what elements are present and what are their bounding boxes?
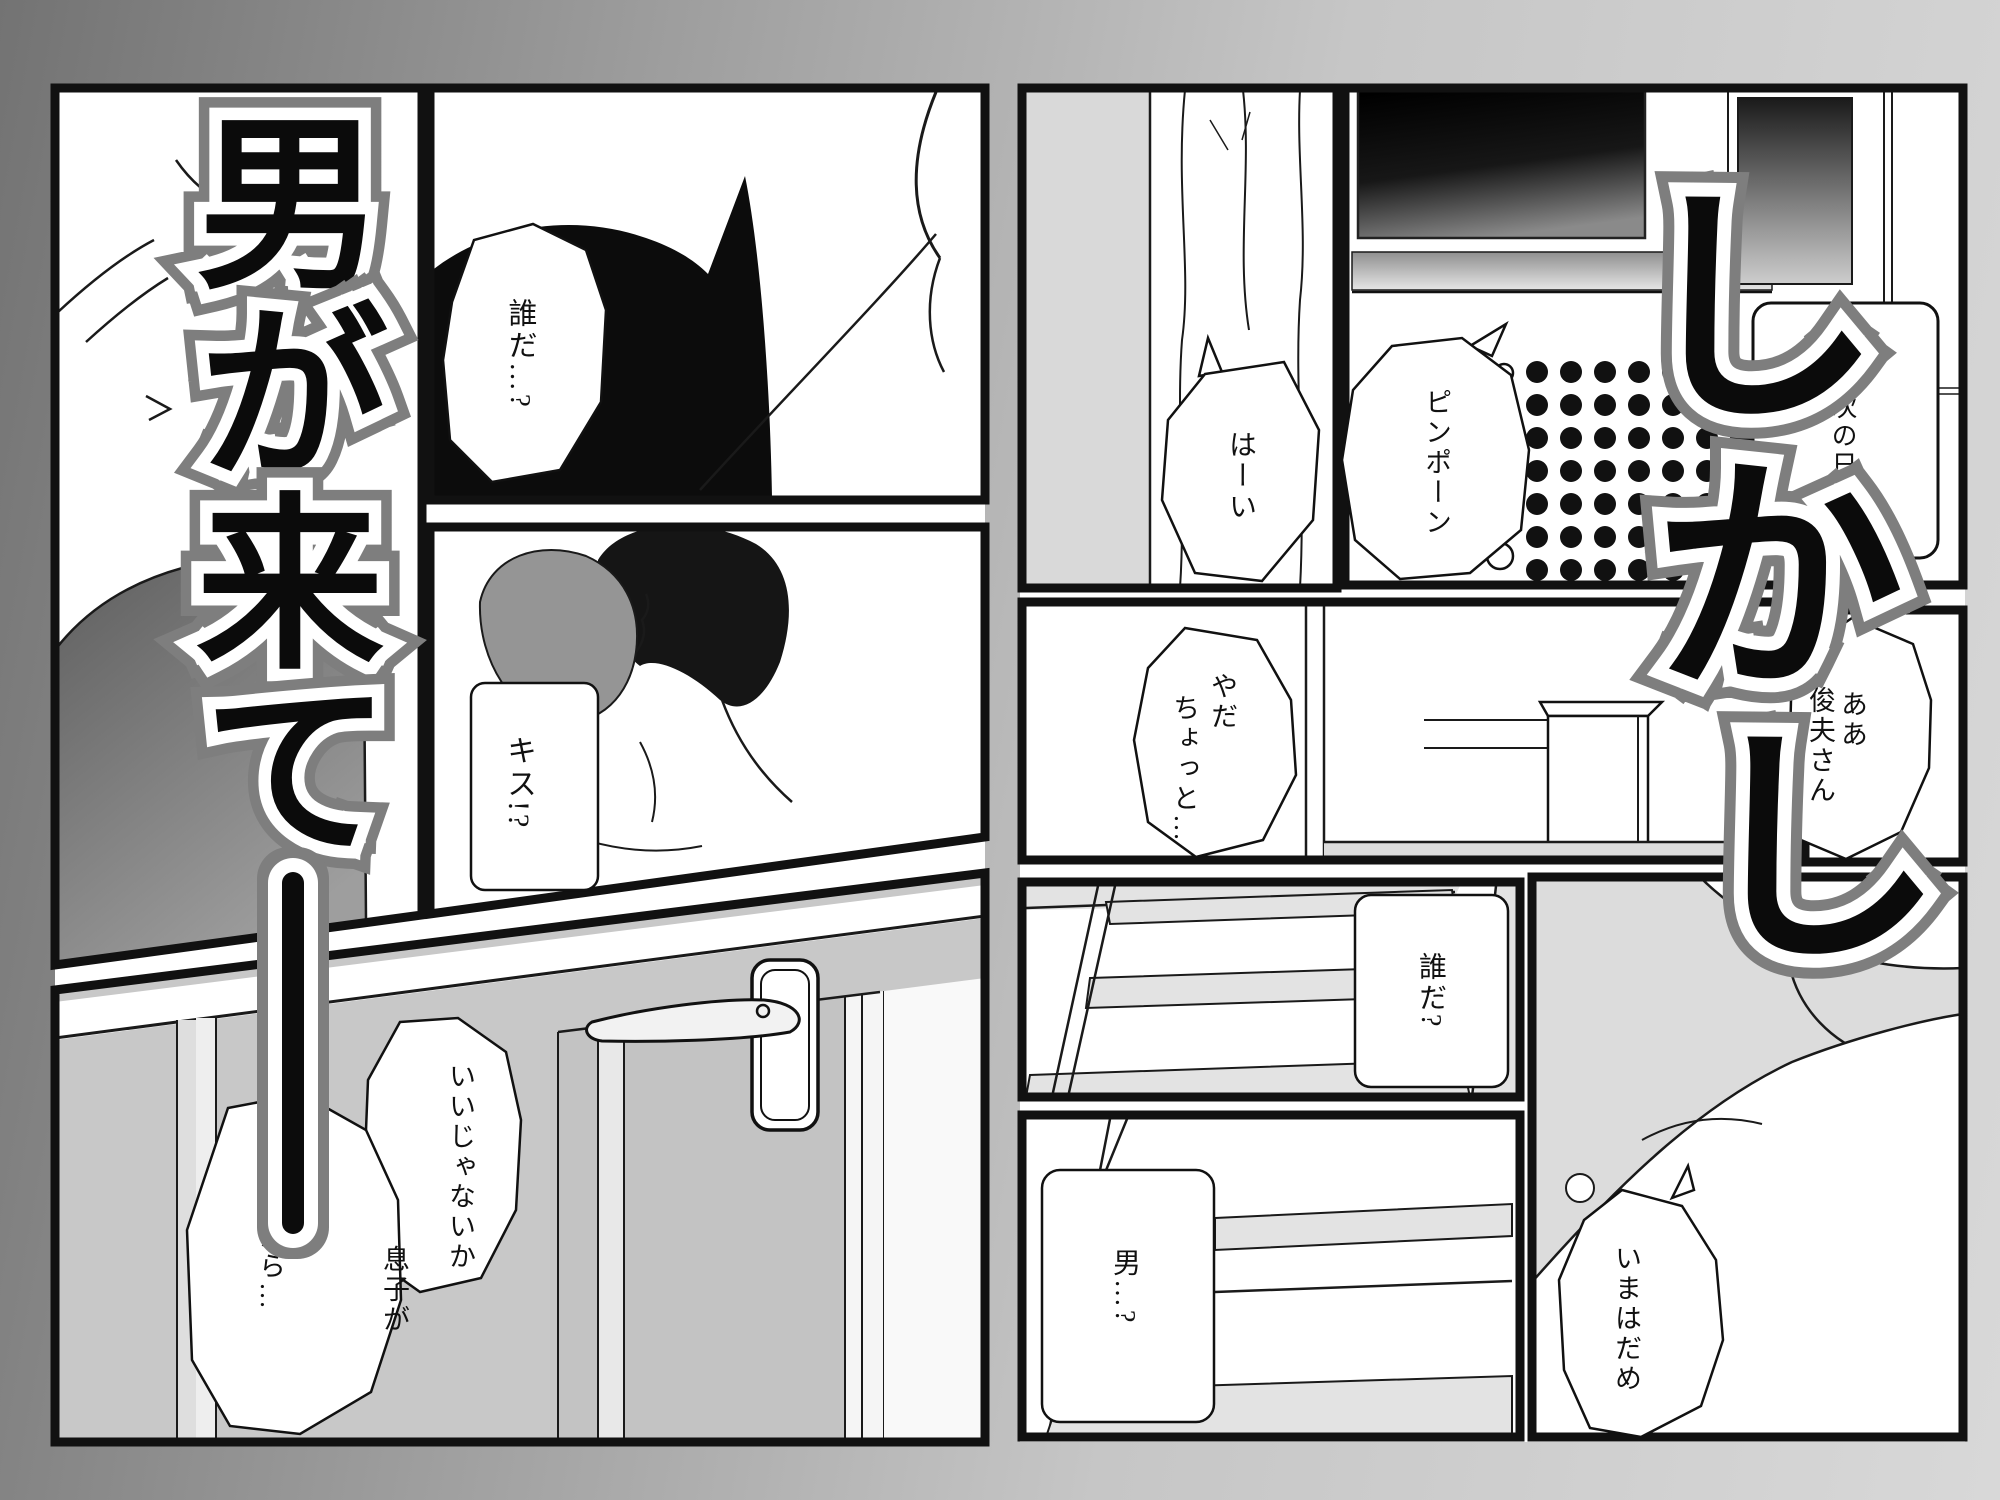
- panel-entry: [1022, 88, 1337, 588]
- bubble-text-nowait-left: ちょっと…: [1170, 694, 1197, 844]
- title-long-dash: [282, 872, 304, 1234]
- panel-dark-whoisit: [430, 88, 985, 500]
- manga-spread: { "titles": { "left": { "text": "男が来て――"…: [0, 0, 2000, 1500]
- caption-text-whoisit: 誰だ?: [1416, 952, 1444, 1029]
- title-char: し: [1692, 725, 1944, 977]
- bubble-text-whoisit-dark: 誰だ…?: [505, 298, 534, 410]
- title-char: か: [1652, 455, 1904, 707]
- title-char: 男: [196, 112, 384, 300]
- title-char: が: [200, 302, 388, 490]
- sfx-text-dingdong: ピンポーン: [1422, 388, 1449, 538]
- bubble-text-son-left: いるから…: [256, 1162, 283, 1312]
- shoe-cabinet: [1548, 716, 1648, 844]
- bubble-text-approval: いいじゃないか: [446, 1062, 473, 1272]
- caption-text-kiss: キス!?: [503, 735, 533, 830]
- caption-text-aman: 男…?: [1110, 1248, 1138, 1325]
- bubble-text-coming: はーい: [1226, 430, 1254, 523]
- title-char: し: [1630, 185, 1882, 437]
- bubble-text-son-right: 息子が: [380, 1245, 407, 1335]
- bubble-text-nowait-right: やだ: [1208, 672, 1235, 732]
- title-char: 来: [196, 492, 384, 680]
- intercom-screen: [1358, 88, 1645, 238]
- title-char: て: [203, 678, 391, 866]
- bubble-text-notnow: いまはだめ: [1612, 1244, 1639, 1394]
- panel-stairs-down: [1022, 1115, 1520, 1437]
